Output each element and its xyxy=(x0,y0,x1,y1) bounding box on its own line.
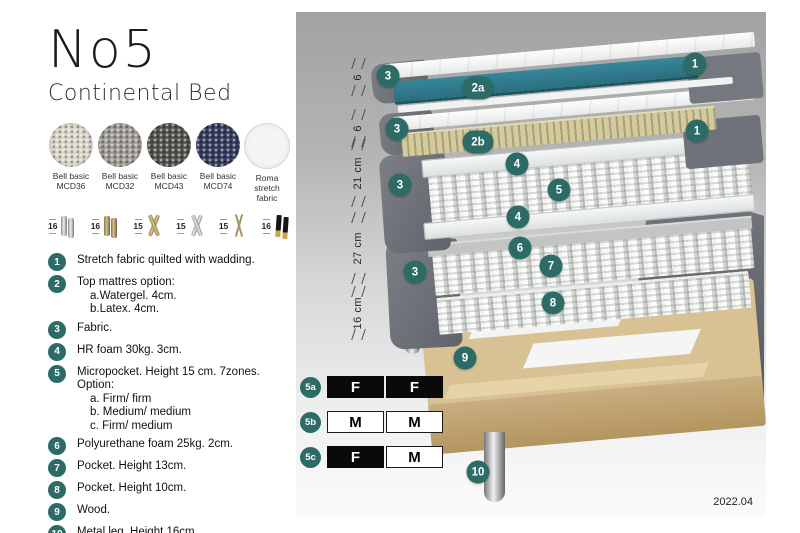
fabric-swatch: Bell basicMCD32 xyxy=(97,123,143,203)
part-sub-option: c. Firm/ medium xyxy=(90,420,293,434)
part-text-block: Polyurethane foam 25kg. 2cm. xyxy=(77,438,233,452)
part-description: Stretch fabric quilted with wadding. xyxy=(77,254,255,268)
part-description: Micropocket. Height 15 cm. 7zones. Optio… xyxy=(77,366,293,393)
tick-mark xyxy=(49,219,56,220)
part-text-block: Stretch fabric quilted with wadding. xyxy=(77,254,255,268)
diagram-badge-1: 1 xyxy=(686,120,709,143)
leg-height-value: 15 xyxy=(219,222,228,231)
part-row: 7Pocket. Height 13cm. xyxy=(48,460,293,477)
firmness-cell: F xyxy=(327,376,384,398)
fabric-swatch-circle xyxy=(244,123,290,169)
leg-height-label: 16 xyxy=(262,217,271,236)
diagram-badge-8: 8 xyxy=(542,292,565,315)
product-sheet: No5 Continental Bed Bell basicMCD36Bell … xyxy=(0,0,800,533)
fabric-swatches: Bell basicMCD36Bell basicMCD32Bell basic… xyxy=(48,123,293,203)
firmness-badge: 5c xyxy=(300,447,321,468)
firmness-row-5c: 5cFM xyxy=(300,446,443,468)
firmness-cell: M xyxy=(386,446,443,468)
leg-option-chrome-cylinder: 16 xyxy=(48,211,76,241)
fabric-code: MCD74 xyxy=(204,181,233,191)
part-description: Fabric. xyxy=(77,322,112,336)
fabric-swatch: Bell basicMCD36 xyxy=(48,123,94,203)
leg-height-value: 16 xyxy=(48,222,57,231)
fabric-swatch-circle xyxy=(98,123,142,167)
part-text-block: HR foam 30kg. 3cm. xyxy=(77,344,182,358)
diagram-badge-4: 4 xyxy=(507,206,530,229)
part-sub-option: b.Latex. 4cm. xyxy=(90,303,177,317)
fabric-swatch: Bell basicMCD74 xyxy=(195,123,241,203)
slat-gap xyxy=(523,329,701,369)
part-number-badge: 10 xyxy=(48,525,66,533)
version-label: 2022.04 xyxy=(713,496,753,508)
page-subtitle: Continental Bed xyxy=(48,81,293,106)
part-description: Pocket. Height 10cm. xyxy=(77,482,186,496)
diagram-badge-1: 1 xyxy=(684,53,707,76)
part-row: 5Micropocket. Height 15 cm. 7zones. Opti… xyxy=(48,366,293,434)
fabric-swatch: Bell basicMCD43 xyxy=(146,123,192,203)
fabric-name: Bell basic xyxy=(151,171,187,181)
part-number-badge: 6 xyxy=(48,437,66,455)
fabric-code: stretch fabric xyxy=(244,183,290,203)
firmness-cell: M xyxy=(327,411,384,433)
part-row: 9Wood. xyxy=(48,504,293,521)
part-number-badge: 4 xyxy=(48,343,66,361)
part-row: 10Metal leg. Height 16cm. xyxy=(48,526,293,533)
part-text-block: Pocket. Height 13cm. xyxy=(77,460,186,474)
firmness-row-5a: 5aFF xyxy=(300,376,443,398)
tick-mark xyxy=(263,233,270,234)
firmness-cell: F xyxy=(327,446,384,468)
part-sub-option: a. Firm/ firm xyxy=(90,393,293,407)
firmness-badge: 5b xyxy=(300,412,321,433)
firmness-table: 5aFF5bMM5cFM xyxy=(300,376,443,468)
part-description: Wood. xyxy=(77,504,110,518)
diagram-badge-3: 3 xyxy=(389,174,412,197)
part-sub-option: a.Watergel. 4cm. xyxy=(90,290,177,304)
hairpin-icon xyxy=(230,214,247,238)
tick-mark xyxy=(135,233,142,234)
fabric-name: Bell basic xyxy=(53,171,89,181)
chrome-cylinder-icon xyxy=(59,214,76,238)
parts-list: 1Stretch fabric quilted with wadding.2To… xyxy=(48,254,293,533)
leg-height-label: 15 xyxy=(219,217,228,236)
info-column: No5 Continental Bed Bell basicMCD36Bell … xyxy=(48,22,293,533)
leg-option-brass-cylinder: 16 xyxy=(91,211,119,241)
leg-height-value: 15 xyxy=(133,222,142,231)
firmness-cells: MM xyxy=(327,411,443,433)
part-number-badge: 7 xyxy=(48,459,66,477)
tick-mark xyxy=(220,219,227,220)
diagram-panel: 6621 cm27 cm16 cm xyxy=(296,12,766,517)
leg-height-label: 16 xyxy=(91,217,100,236)
part-number-badge: 9 xyxy=(48,503,66,521)
diagram-badge-2b: 2b xyxy=(463,131,494,154)
part-text-block: Wood. xyxy=(77,504,110,518)
firmness-cell: F xyxy=(386,376,443,398)
firmness-badge: 5a xyxy=(300,377,321,398)
diagram-badge-4: 4 xyxy=(506,153,529,176)
leg-height-label: 15 xyxy=(133,217,142,236)
brass-cylinder-icon xyxy=(102,214,119,238)
tick-mark xyxy=(220,233,227,234)
diagram-badge-3: 3 xyxy=(404,261,427,284)
leg-option-silver-cross: 15 xyxy=(176,211,204,241)
part-description: Metal leg. Height 16cm. xyxy=(77,526,198,533)
tick-mark xyxy=(92,233,99,234)
diagram-badge-3: 3 xyxy=(377,65,400,88)
diagram-badge-9: 9 xyxy=(454,347,477,370)
fabric-swatch-circle xyxy=(49,123,93,167)
tick-mark xyxy=(263,219,270,220)
fabric-name: Roma xyxy=(256,173,279,183)
tick-mark xyxy=(135,219,142,220)
leg-height-value: 16 xyxy=(91,222,100,231)
part-number-badge: 3 xyxy=(48,321,66,339)
fabric-swatch-circle xyxy=(196,123,240,167)
fabric-swatch-circle xyxy=(147,123,191,167)
part-description: Polyurethane foam 25kg. 2cm. xyxy=(77,438,233,452)
firmness-cells: FM xyxy=(327,446,443,468)
tick-mark xyxy=(177,219,184,220)
part-text-block: Pocket. Height 10cm. xyxy=(77,482,186,496)
firmness-row-5b: 5bMM xyxy=(300,411,443,433)
part-description: Pocket. Height 13cm. xyxy=(77,460,186,474)
part-row: 1Stretch fabric quilted with wadding. xyxy=(48,254,293,271)
part-row: 2Top mattres option:a.Watergel. 4cm.b.La… xyxy=(48,276,293,317)
fabric-name: Bell basic xyxy=(102,171,138,181)
fabric-code: MCD32 xyxy=(106,181,135,191)
leg-height-label: 15 xyxy=(176,217,185,236)
part-row: 3Fabric. xyxy=(48,322,293,339)
tick-mark xyxy=(92,219,99,220)
leg-height-value: 15 xyxy=(176,222,185,231)
part-description: HR foam 30kg. 3cm. xyxy=(77,344,182,358)
tick-mark xyxy=(177,233,184,234)
leg-option-hairpin: 15 xyxy=(219,211,247,241)
part-number-badge: 8 xyxy=(48,481,66,499)
part-text-block: Micropocket. Height 15 cm. 7zones. Optio… xyxy=(77,366,293,434)
diagram-badge-10: 10 xyxy=(467,461,490,484)
leg-option-gold-cross: 15 xyxy=(133,211,161,241)
part-number-badge: 2 xyxy=(48,275,66,293)
part-text-block: Fabric. xyxy=(77,322,112,336)
page-title: No5 xyxy=(48,22,293,78)
diagram-badge-5: 5 xyxy=(548,179,571,202)
part-number-badge: 5 xyxy=(48,365,66,383)
tick-mark xyxy=(49,233,56,234)
leg-option-black-gold: 16 xyxy=(262,211,290,241)
diagram-badge-3: 3 xyxy=(386,118,409,141)
part-row: 6Polyurethane foam 25kg. 2cm. xyxy=(48,438,293,455)
fabric-code: MCD43 xyxy=(155,181,184,191)
fabric-code: MCD36 xyxy=(57,181,86,191)
part-number-badge: 1 xyxy=(48,253,66,271)
leg-height-label: 16 xyxy=(48,217,57,236)
part-row: 8Pocket. Height 10cm. xyxy=(48,482,293,499)
part-row: 4HR foam 30kg. 3cm. xyxy=(48,344,293,361)
fabric-swatch: Romastretch fabric xyxy=(244,123,290,203)
silver-cross-icon xyxy=(188,214,205,238)
diagram-badge-2a: 2a xyxy=(463,77,494,100)
firmness-cell: M xyxy=(386,411,443,433)
fabric-name: Bell basic xyxy=(200,171,236,181)
firmness-cells: FF xyxy=(327,376,443,398)
part-description: Top mattres option: xyxy=(77,276,177,290)
black-gold-icon xyxy=(273,214,290,238)
part-text-block: Top mattres option:a.Watergel. 4cm.b.Lat… xyxy=(77,276,177,317)
leg-height-value: 16 xyxy=(262,222,271,231)
part-sub-option: b. Medium/ medium xyxy=(90,406,293,420)
diagram-badge-6: 6 xyxy=(509,237,532,260)
diagram-badge-7: 7 xyxy=(540,255,563,278)
leg-options: 161615151516 xyxy=(48,211,290,241)
part-text-block: Metal leg. Height 16cm. xyxy=(77,526,198,533)
gold-cross-icon xyxy=(145,214,162,238)
